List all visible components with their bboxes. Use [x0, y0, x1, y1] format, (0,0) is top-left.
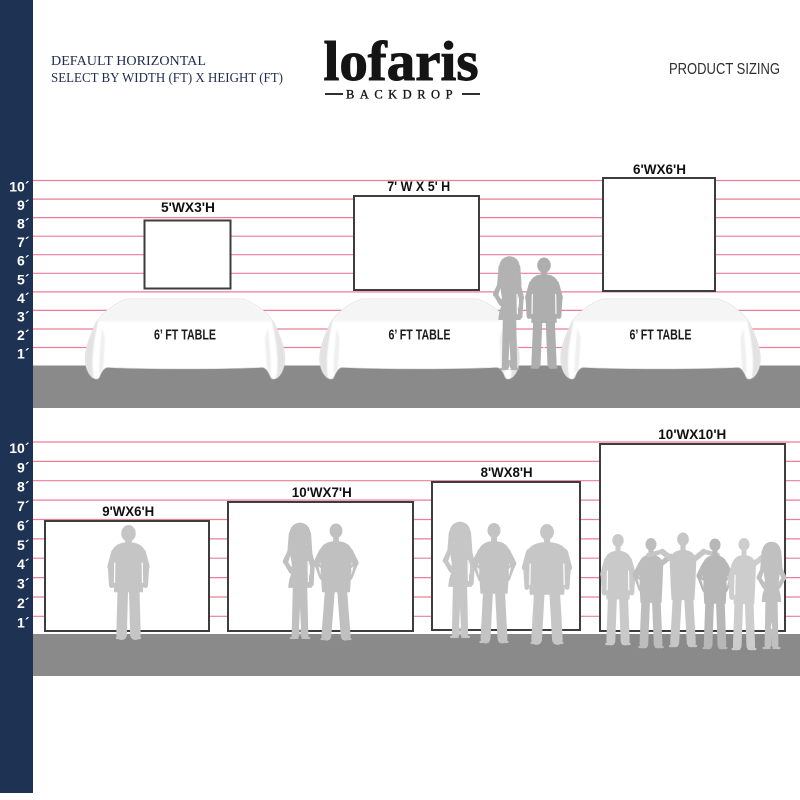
svg-text:6’ FT TABLE: 6’ FT TABLE: [154, 328, 216, 344]
svg-text:1´: 1´: [17, 614, 30, 630]
svg-text:8´: 8´: [17, 479, 30, 495]
svg-text:BACKDROP: BACKDROP: [346, 88, 458, 102]
svg-text:5´: 5´: [17, 537, 30, 553]
svg-text:lofaris: lofaris: [324, 31, 479, 93]
svg-text:4´: 4´: [17, 290, 30, 306]
svg-text:6’ FT TABLE: 6’ FT TABLE: [630, 328, 692, 344]
svg-text:9´: 9´: [17, 197, 30, 213]
svg-text:9'WX6'H: 9'WX6'H: [102, 504, 154, 519]
svg-text:1´: 1´: [17, 346, 30, 362]
svg-text:2´: 2´: [17, 327, 30, 343]
svg-text:6´: 6´: [17, 518, 30, 534]
svg-text:6´: 6´: [17, 253, 30, 269]
svg-text:2´: 2´: [17, 595, 30, 611]
svg-text:5'WX3'H: 5'WX3'H: [161, 200, 215, 215]
svg-text:7´: 7´: [17, 234, 30, 250]
svg-text:6’ FT TABLE: 6’ FT TABLE: [389, 328, 451, 344]
svg-text:5´: 5´: [17, 271, 30, 287]
svg-text:9´: 9´: [17, 459, 30, 475]
svg-text:7´: 7´: [17, 498, 30, 514]
svg-text:PRODUCT SIZING: PRODUCT SIZING: [669, 61, 780, 78]
svg-text:10´: 10´: [9, 179, 30, 195]
svg-text:10´: 10´: [9, 440, 30, 456]
svg-text:SELECT BY WIDTH (FT) X HEIGHT: SELECT BY WIDTH (FT) X HEIGHT (FT): [51, 70, 283, 85]
svg-text:7' W X 5' H: 7' W X 5' H: [387, 179, 450, 194]
svg-text:3´: 3´: [17, 576, 30, 592]
svg-text:DEFAULT HORIZONTAL: DEFAULT HORIZONTAL: [51, 53, 206, 68]
svg-text:8´: 8´: [17, 216, 30, 232]
svg-text:8'WX8'H: 8'WX8'H: [481, 465, 533, 480]
svg-text:4´: 4´: [17, 556, 30, 572]
svg-text:10'WX7'H: 10'WX7'H: [292, 485, 352, 500]
svg-text:3´: 3´: [17, 308, 30, 324]
svg-text:10'WX10'H: 10'WX10'H: [658, 427, 726, 442]
svg-text:6'WX6'H: 6'WX6'H: [633, 162, 686, 177]
